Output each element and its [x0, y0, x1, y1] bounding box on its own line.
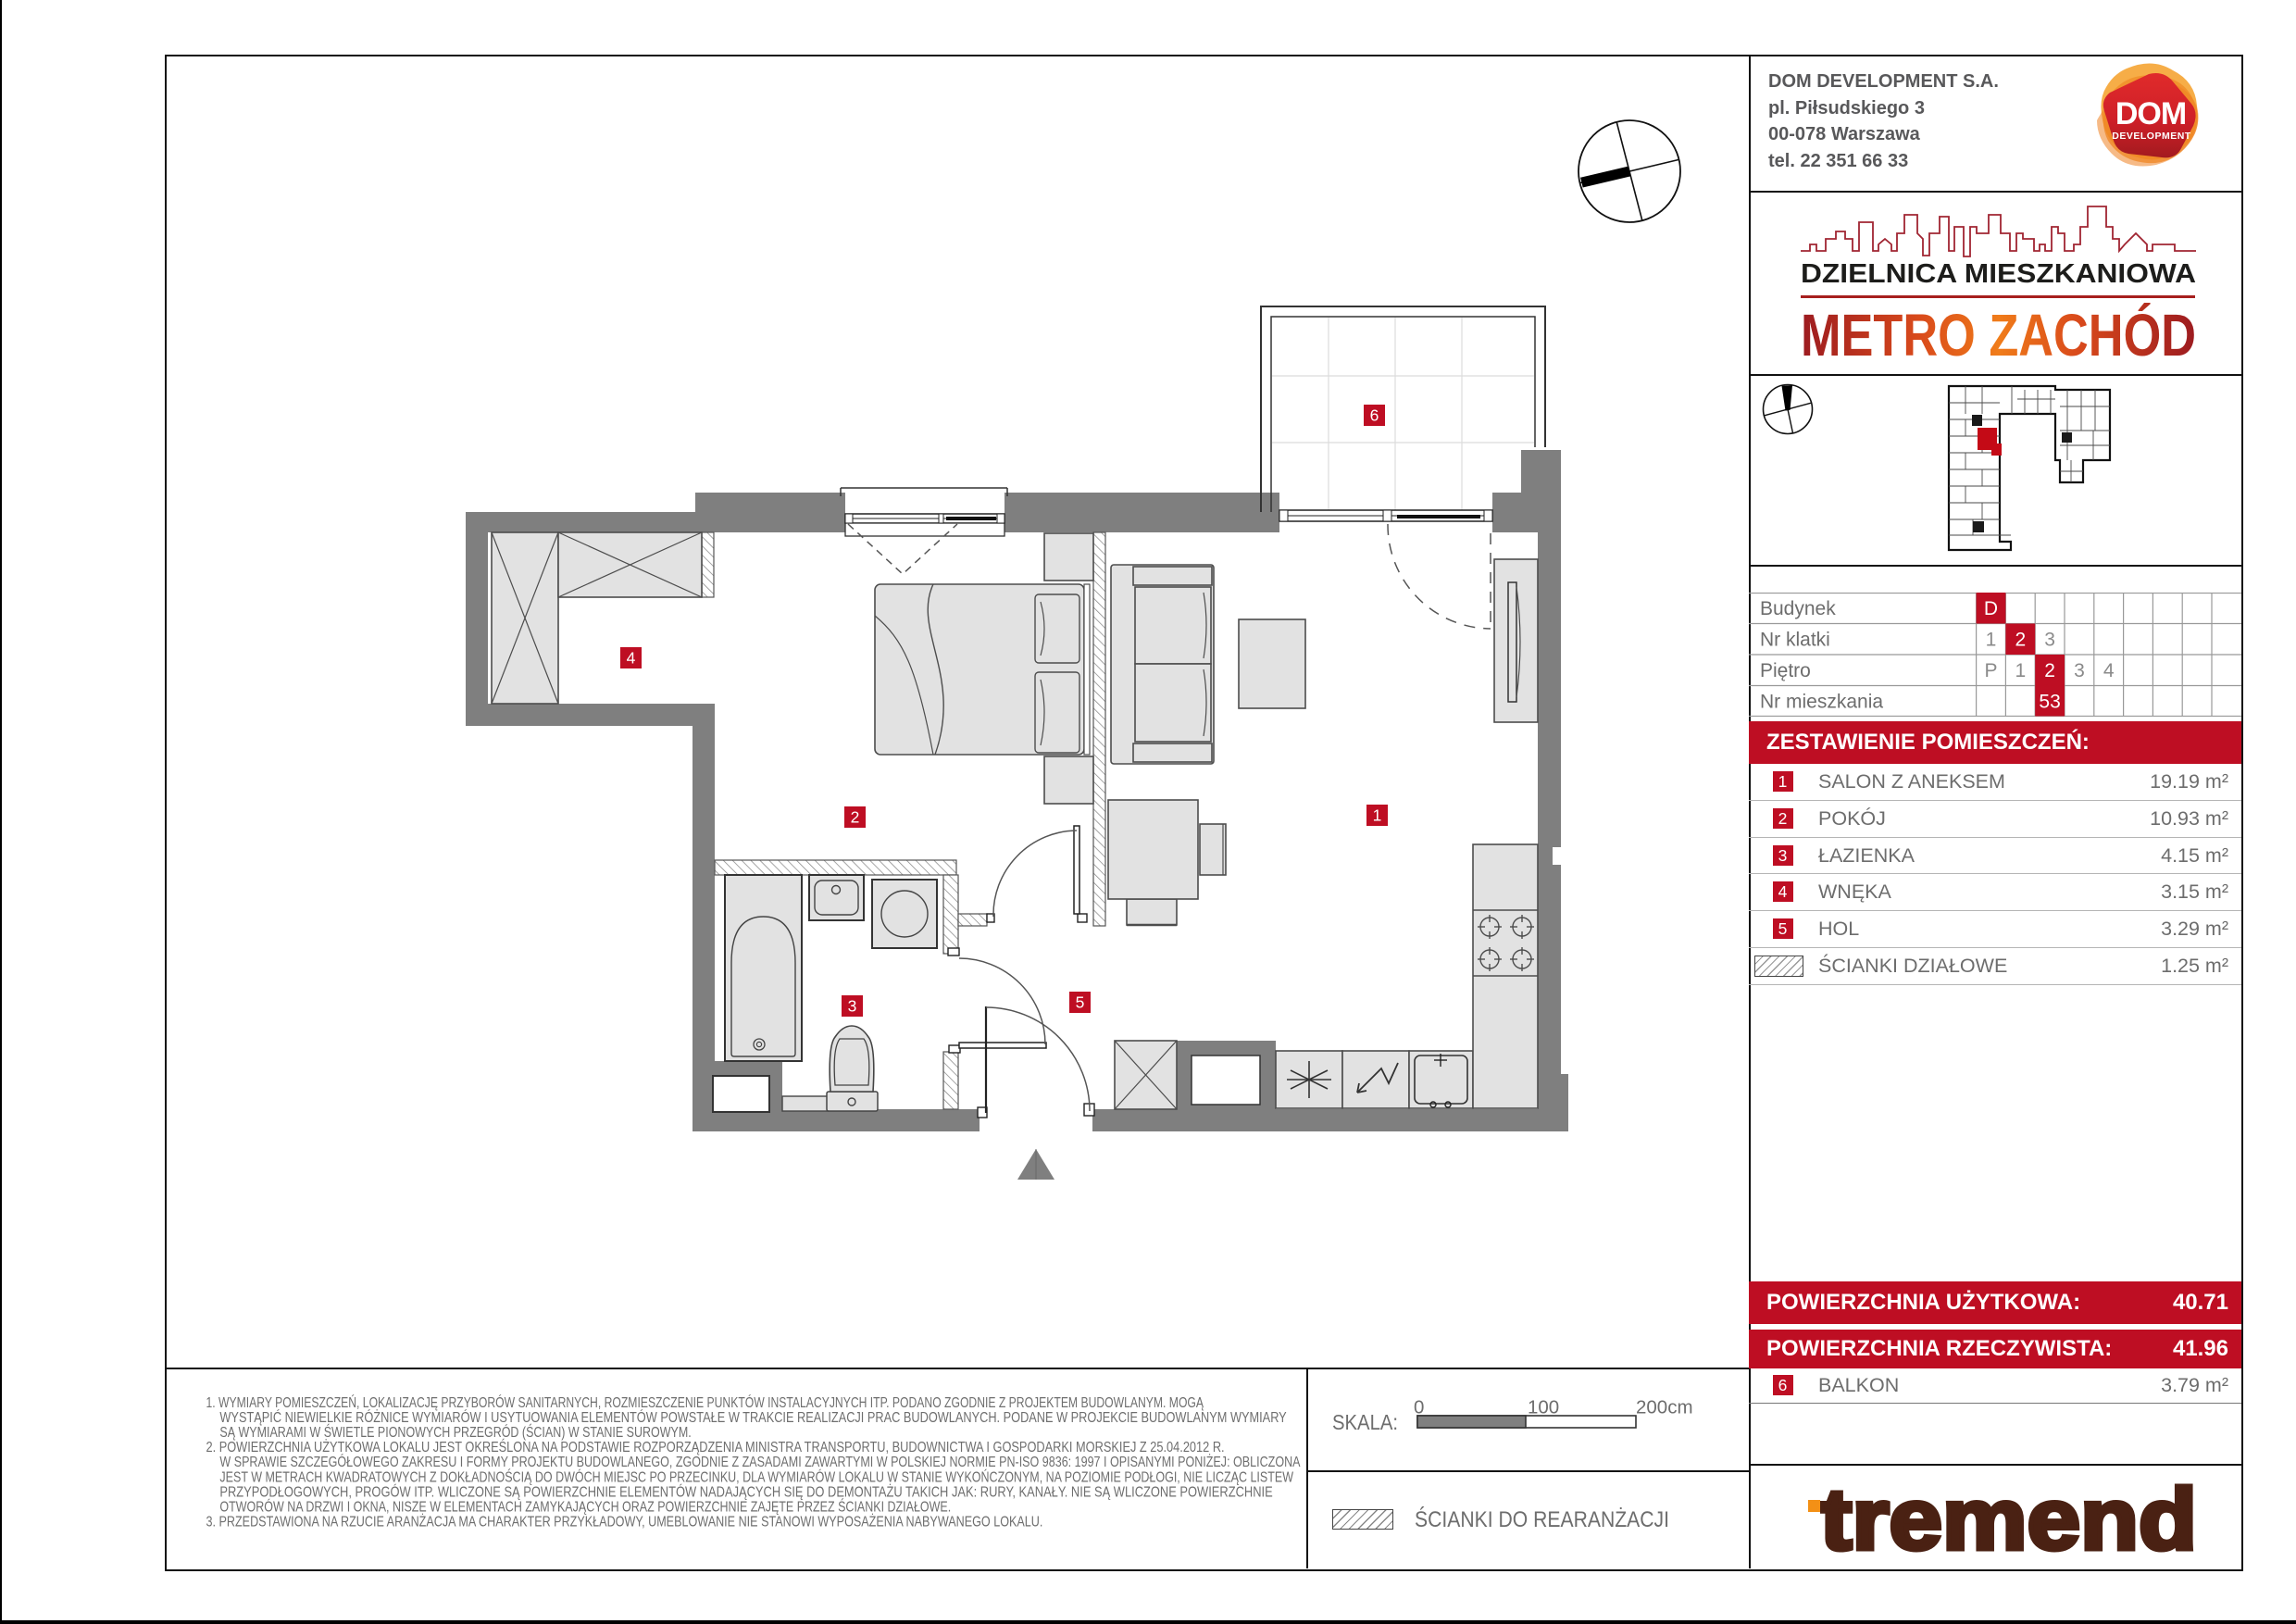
svg-text:P: P	[1984, 660, 1997, 681]
svg-text:OTWORÓW NA DRZWI I OKNA, NISZE: OTWORÓW NA DRZWI I OKNA, NISZE W ELEMENT…	[219, 1498, 951, 1516]
svg-text:W SPRAWIE SZCZEGÓŁOWEGO ZAKRES: W SPRAWIE SZCZEGÓŁOWEGO ZAKRESU I FORMY …	[219, 1453, 1300, 1470]
svg-text:PRZYPODŁOGOWYCH, PROGÓW ITP. W: PRZYPODŁOGOWYCH, PROGÓW ITP. WLICZONE SĄ…	[219, 1482, 1272, 1500]
svg-text:2: 2	[2044, 660, 2055, 681]
svg-text:Piętro: Piętro	[1760, 660, 1811, 681]
svg-text:5: 5	[1076, 993, 1085, 1012]
svg-text:2. POWIERZCHNIA UŻYTKOWA LOKAL: 2. POWIERZCHNIA UŻYTKOWA LOKALU JEST OKR…	[206, 1438, 1225, 1455]
svg-text:200cm: 200cm	[1636, 1397, 1693, 1418]
svg-text:2: 2	[2015, 630, 2026, 651]
svg-text:DEVELOPMENT: DEVELOPMENT	[2112, 131, 2191, 142]
svg-text:4: 4	[2103, 660, 2115, 681]
svg-text:0: 0	[1414, 1397, 1424, 1418]
svg-text:3: 3	[848, 997, 857, 1016]
svg-text:4: 4	[627, 649, 636, 668]
svg-text:2: 2	[851, 808, 860, 827]
svg-text:Nr mieszkania: Nr mieszkania	[1760, 692, 1883, 713]
svg-text:D: D	[1984, 598, 1998, 619]
svg-text:100: 100	[1528, 1397, 1559, 1418]
svg-text:1. WYMIARY POMIESZCZEŃ, LOKALI: 1. WYMIARY POMIESZCZEŃ, LOKALIZACJĘ PRZY…	[206, 1393, 1204, 1411]
svg-text:1: 1	[1373, 806, 1382, 825]
svg-text:3: 3	[2044, 630, 2055, 651]
svg-text:3. PRZEDSTAWIONA NA RZUCIE ARA: 3. PRZEDSTAWIONA NA RZUCIE ARANŻACJA MA …	[206, 1513, 1043, 1530]
svg-text:6: 6	[1370, 406, 1379, 425]
svg-text:Nr klatki: Nr klatki	[1760, 630, 1830, 651]
svg-text:53: 53	[2039, 692, 2060, 713]
svg-text:Budynek: Budynek	[1760, 598, 1836, 619]
svg-text:DZIELNICA MIESZKANIOWA: DZIELNICA MIESZKANIOWA	[1801, 259, 2196, 289]
svg-text:tremend: tremend	[1820, 1470, 2197, 1561]
svg-text:1: 1	[2015, 660, 2026, 681]
svg-text:WYSTĄPIĆ NIEWIELKIE RÓŻNICE WY: WYSTĄPIĆ NIEWIELKIE RÓŻNICE WYMIARÓW I U…	[219, 1408, 1287, 1426]
svg-text:JEST W METRACH KWADRATOWYCH Z: JEST W METRACH KWADRATOWYCH Z DOKŁADNOŚC…	[219, 1468, 1293, 1485]
svg-text:SKALA:: SKALA:	[1332, 1410, 1398, 1434]
svg-text:1: 1	[1986, 630, 1997, 651]
svg-text:3: 3	[2074, 660, 2085, 681]
svg-text:SĄ WYMIARAMI W ŚWIETLE PIONOWY: SĄ WYMIARAMI W ŚWIETLE PIONOWYCH PRZEGRÓ…	[219, 1423, 691, 1441]
svg-text:ŚCIANKI DO REARANŻACJI: ŚCIANKI DO REARANŻACJI	[1415, 1506, 1669, 1532]
svg-text:METRO ZACHÓD: METRO ZACHÓD	[1801, 302, 2196, 369]
svg-text:DOM: DOM	[2115, 96, 2186, 131]
